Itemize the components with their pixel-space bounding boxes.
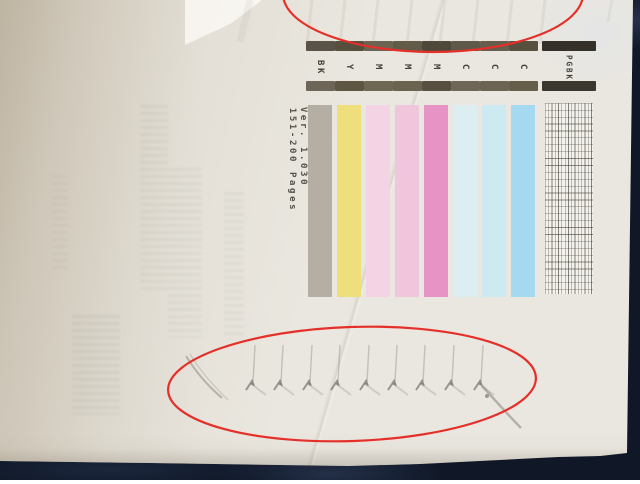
- header-bar-c: [509, 81, 538, 91]
- header-bar-m: [364, 41, 393, 51]
- ink-smudge-marks: [186, 345, 521, 428]
- header-bar-m: [422, 81, 451, 91]
- header-bar-c: [480, 41, 509, 51]
- grid-pattern-pgbk: [545, 103, 593, 294]
- header-bar-m: [393, 81, 422, 91]
- header-bar-c: [509, 41, 538, 51]
- color-bar-c: [511, 105, 535, 297]
- ink-label-m: M: [373, 64, 383, 72]
- faded-print-streaks: [240, 0, 612, 44]
- color-bar-c: [482, 105, 506, 297]
- ink-label-c: C: [518, 64, 528, 72]
- color-bar-m: [366, 105, 390, 297]
- color-bar-bk: [308, 105, 332, 297]
- header-bar-c: [480, 81, 509, 91]
- photo-background: BKYMMMCCCPGBK 151-200 Pages Ver. 1.030: [0, 0, 640, 480]
- color-bar-m: [395, 105, 419, 297]
- color-bar-m: [424, 105, 448, 297]
- ink-label-y: Y: [344, 64, 354, 72]
- ink-label-m: M: [431, 64, 441, 72]
- ink-label-c: C: [489, 64, 499, 72]
- ink-label-bk: BK: [315, 60, 325, 76]
- header-bar-c: [451, 81, 480, 91]
- header-bar-m: [422, 41, 451, 51]
- paper-edge-shadow: [0, 448, 640, 466]
- color-bar-c: [453, 105, 477, 297]
- show-through-text: [140, 105, 168, 290]
- show-through-text: [72, 315, 120, 415]
- header-bar-y: [335, 81, 364, 91]
- version-text: Ver. 1.030: [298, 107, 308, 187]
- header-bar-m: [393, 41, 422, 51]
- show-through-text: [224, 192, 244, 340]
- page-range-text: 151-200 Pages: [287, 108, 297, 212]
- ink-label-c: C: [460, 64, 470, 72]
- ink-label-m: M: [402, 64, 412, 72]
- header-bar-m: [364, 81, 393, 91]
- paper-fold-highlight: [185, 0, 262, 45]
- ink-label-pgbk: PGBK: [565, 55, 574, 81]
- show-through-text: [52, 175, 68, 270]
- color-bar-y: [337, 105, 361, 297]
- header-bar-bk: [306, 81, 335, 91]
- header-bar-y: [335, 41, 364, 51]
- show-through-text: [168, 168, 202, 338]
- header-bar-bk: [306, 41, 335, 51]
- header-bar-pgbk: [542, 41, 596, 51]
- header-bar-c: [451, 41, 480, 51]
- header-bar-pgbk: [542, 81, 596, 91]
- nozzle-check-paper: BKYMMMCCCPGBK 151-200 Pages Ver. 1.030: [0, 0, 640, 480]
